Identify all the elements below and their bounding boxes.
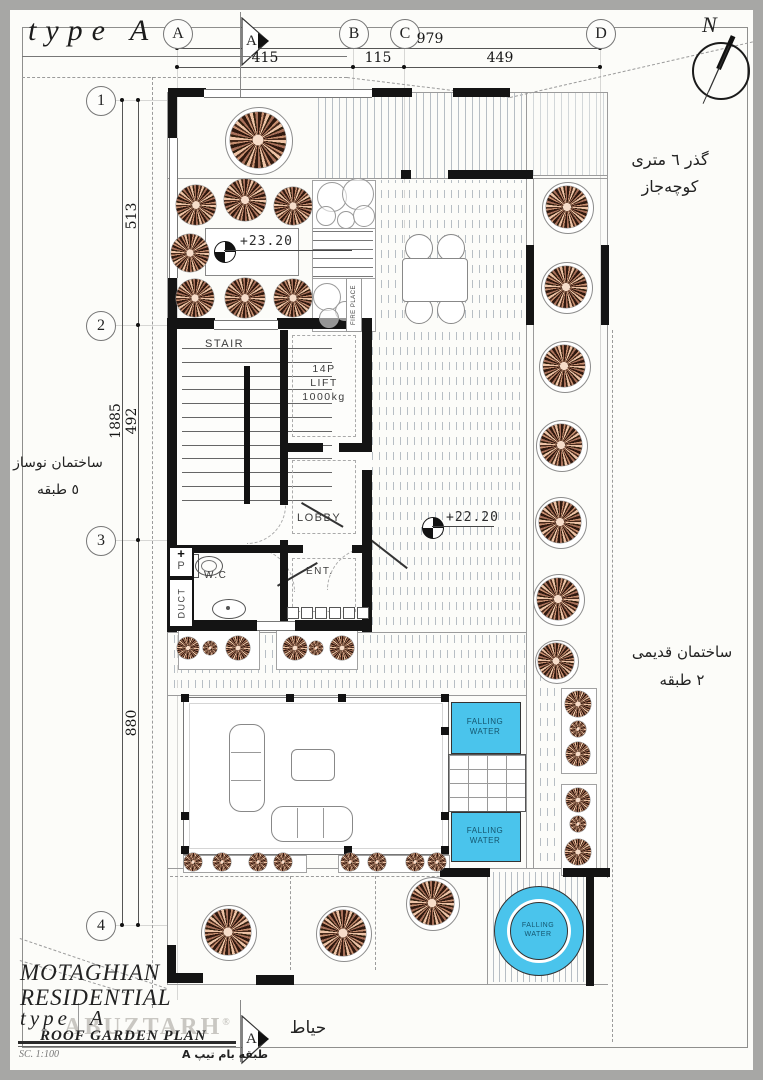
- falling-water-pool-label: FALLING WATER: [510, 902, 566, 958]
- dim-dot: [136, 538, 140, 542]
- fw1-line1: FALLING: [467, 717, 503, 727]
- alley-label: گذر ٦ متری کوچه‌جاز: [600, 146, 740, 200]
- deck-stripes: [318, 92, 526, 178]
- plan-edge: [168, 695, 526, 696]
- watermark-reg: ®: [222, 1017, 232, 1028]
- property-line-dashed: [152, 77, 153, 1008]
- tree: [545, 266, 587, 308]
- titleblock-persian: طبقه بام تیپ A: [180, 1048, 270, 1061]
- dim-span-12: 513: [124, 191, 140, 241]
- tree: [543, 345, 585, 387]
- tree: [566, 742, 590, 766]
- pipe-plus: +: [170, 548, 192, 560]
- tree: [274, 853, 292, 871]
- pergola-post: [441, 694, 449, 702]
- dim-line: [122, 100, 123, 925]
- fw1-line2: WATER: [470, 727, 501, 737]
- tree: [225, 278, 265, 318]
- level-upper: +23.20: [240, 234, 293, 249]
- old-building-line2: ٢ طبقه: [608, 666, 756, 694]
- fw2-line1: FALLING: [467, 826, 503, 836]
- wall: [440, 868, 490, 877]
- ent-label: ENT.: [306, 566, 334, 577]
- pergola-post: [338, 694, 346, 702]
- wall: [586, 868, 594, 986]
- tree: [309, 641, 323, 655]
- grid-bubble-1: 1: [86, 86, 116, 116]
- wall: [339, 443, 367, 452]
- yard-label: حیاط: [268, 1018, 348, 1038]
- fireplace-label: FIRE PLACE: [351, 285, 357, 325]
- pool-line2: WATER: [525, 930, 552, 939]
- deck-stripes: [372, 327, 526, 632]
- wall: [283, 443, 323, 452]
- pool-line1: FALLING: [522, 921, 554, 930]
- tree: [368, 853, 386, 871]
- old-building-line1: ساختمان قدیمی: [608, 638, 756, 666]
- plan-edge: [526, 175, 608, 176]
- wall: [526, 245, 534, 325]
- sofa-seam: [231, 752, 261, 753]
- pipe-label: P: [170, 560, 192, 572]
- pergola-post: [286, 694, 294, 702]
- wall: [401, 170, 411, 179]
- titleblock-rule-thin: [18, 1046, 236, 1047]
- new-building-line2: ٥ طبقه: [6, 477, 110, 504]
- sofa: [271, 806, 353, 842]
- dim-dot: [136, 923, 140, 927]
- tree: [274, 187, 312, 225]
- sofa-seam: [323, 808, 324, 838]
- window: [204, 89, 372, 98]
- alley-line2: کوچه‌جاز: [600, 173, 740, 200]
- wall: [352, 545, 370, 553]
- plan-edge: [607, 92, 608, 878]
- grille-square: [301, 607, 313, 619]
- tree: [330, 636, 354, 660]
- titleblock-line1: MOTAGHIAN: [20, 960, 160, 986]
- deck-stripes: [526, 92, 608, 175]
- level-leader-lower: [432, 526, 494, 527]
- wall: [448, 170, 533, 179]
- level-marker-upper-icon: [214, 241, 236, 263]
- sheet-title: type A: [28, 14, 157, 48]
- coffee-table: [291, 749, 335, 781]
- tree: [230, 112, 286, 168]
- tree: [410, 881, 454, 925]
- pergola-post: [441, 812, 449, 820]
- drawing-sheet: type A A B C D 1 2 3 4 979 415 115 449 1…: [0, 0, 763, 1080]
- dim-span-BC: 115: [353, 50, 403, 66]
- section-label-bottom: A: [246, 1031, 257, 1048]
- old-building-label: ساختمان قدیمی ٢ طبقه: [608, 638, 756, 694]
- falling-water-2-label: FALLING WATER: [451, 812, 519, 860]
- tree: [406, 853, 424, 871]
- pergola-post: [441, 846, 449, 854]
- plan-edge: [168, 178, 608, 179]
- pergola-post: [441, 727, 449, 735]
- tree-outline: [353, 205, 375, 227]
- step-line: [313, 231, 373, 232]
- sink-drain: [226, 606, 230, 610]
- tree: [546, 186, 588, 228]
- plan-edge: [526, 92, 527, 868]
- dim-total-height: 1885: [108, 396, 124, 446]
- tree: [538, 643, 574, 679]
- lift-line3: 1000kg: [296, 390, 352, 404]
- wall: [285, 545, 303, 553]
- dim-dot: [175, 65, 179, 69]
- dim-dot: [120, 923, 124, 927]
- tree: [274, 279, 312, 317]
- tree: [565, 691, 591, 717]
- planter-box: [312, 228, 376, 280]
- tree: [249, 853, 267, 871]
- wall: [453, 88, 510, 97]
- dim-span-CD: 449: [475, 50, 525, 66]
- titleblock-rule-thick: [18, 1041, 236, 1044]
- wall: [167, 973, 203, 983]
- tree: [537, 578, 579, 620]
- grid-bubble-B: B: [339, 19, 369, 49]
- dim-dot: [136, 98, 140, 102]
- tree: [570, 721, 586, 737]
- tree: [184, 853, 202, 871]
- sofa: [229, 724, 265, 812]
- grille-square: [343, 607, 355, 619]
- level-leader-upper: [224, 250, 352, 251]
- pergola-post: [181, 846, 189, 854]
- new-building-line1: ساختمان نوساز: [6, 450, 110, 477]
- tree: [205, 909, 251, 955]
- section-label-top: A: [246, 33, 257, 50]
- new-building-label: ساختمان نوساز ٥ طبقه: [6, 450, 110, 504]
- tree: [566, 788, 590, 812]
- tree: [171, 234, 209, 272]
- tree: [428, 853, 446, 871]
- property-line-dashed: [375, 876, 376, 970]
- sofa-seam: [231, 780, 261, 781]
- pergola-post: [181, 694, 189, 702]
- dining-table: [402, 258, 468, 302]
- tree: [570, 816, 586, 832]
- grid-bubble-2: 2: [86, 311, 116, 341]
- dim-span-34: 880: [124, 698, 140, 748]
- level-marker-lower-icon: [422, 517, 444, 539]
- tree-outline: [342, 178, 374, 210]
- tree: [177, 637, 199, 659]
- stair-rail: [244, 366, 250, 504]
- lift-label: 14P LIFT 1000kg: [296, 362, 352, 404]
- title-underline: [22, 56, 347, 57]
- fw2-line2: WATER: [470, 836, 501, 846]
- grid-bubble-A: A: [163, 19, 193, 49]
- dim-dot: [598, 65, 602, 69]
- lift-line1: 14P: [296, 362, 352, 376]
- wall: [280, 330, 288, 505]
- dim-span-23: 492: [124, 396, 140, 446]
- tree-outline: [316, 206, 336, 226]
- titleblock-scale: SC. 1:100: [19, 1049, 59, 1060]
- fireplace-box: FIRE PLACE: [346, 278, 362, 332]
- tree: [203, 641, 217, 655]
- duct-label: DUCT: [176, 588, 186, 619]
- stair-label: STAIR: [205, 338, 244, 350]
- tree: [224, 179, 266, 221]
- grille-square: [329, 607, 341, 619]
- tree: [213, 853, 231, 871]
- tree: [176, 279, 214, 317]
- grid-bubble-3: 3: [86, 526, 116, 556]
- duct-box: DUCT: [168, 578, 194, 628]
- dim-span-AB: 415: [240, 50, 290, 66]
- lift-line2: LIFT: [296, 376, 352, 390]
- wall: [295, 620, 372, 631]
- wall: [372, 88, 412, 97]
- tree: [565, 839, 591, 865]
- tree: [283, 636, 307, 660]
- step-line: [313, 276, 373, 277]
- step-line: [313, 240, 373, 241]
- lobby-label: LOBBY: [297, 512, 341, 524]
- grille-square: [315, 607, 327, 619]
- grid-bubble-D: D: [586, 19, 616, 49]
- compass-circle: [692, 42, 750, 100]
- property-line-dashed: [290, 876, 291, 970]
- wall: [601, 245, 609, 325]
- property-line-dashed: [22, 77, 347, 78]
- alley-line1: گذر ٦ متری: [600, 146, 740, 173]
- tree: [176, 185, 216, 225]
- tree: [539, 501, 581, 543]
- grille-square: [357, 607, 369, 619]
- plan-edge: [167, 984, 608, 985]
- dim-dot: [120, 98, 124, 102]
- falling-water-1-label: FALLING WATER: [451, 702, 519, 752]
- dim-dot: [136, 323, 140, 327]
- tree: [341, 853, 359, 871]
- wall: [362, 470, 372, 545]
- tile-terrace: [448, 754, 526, 812]
- grid-bubble-4: 4: [86, 911, 116, 941]
- sofa-seam: [297, 808, 298, 838]
- dim-total-width: 979: [405, 31, 455, 47]
- north-label: N: [702, 12, 717, 38]
- tree-outline: [319, 308, 339, 328]
- grille-square: [287, 607, 299, 619]
- window: [257, 621, 295, 631]
- tree: [320, 910, 366, 956]
- wc-label: W.C: [204, 570, 227, 581]
- tree: [226, 636, 250, 660]
- level-lower: +22.20: [446, 510, 499, 525]
- pipe-box: + P: [168, 546, 194, 578]
- wall: [168, 92, 177, 138]
- tree: [540, 424, 582, 466]
- wall: [256, 975, 294, 985]
- pergola-post: [181, 812, 189, 820]
- plan-edge: [487, 868, 488, 984]
- window: [214, 320, 278, 330]
- wall: [362, 318, 372, 452]
- step-line: [313, 258, 373, 259]
- step-line: [313, 267, 373, 268]
